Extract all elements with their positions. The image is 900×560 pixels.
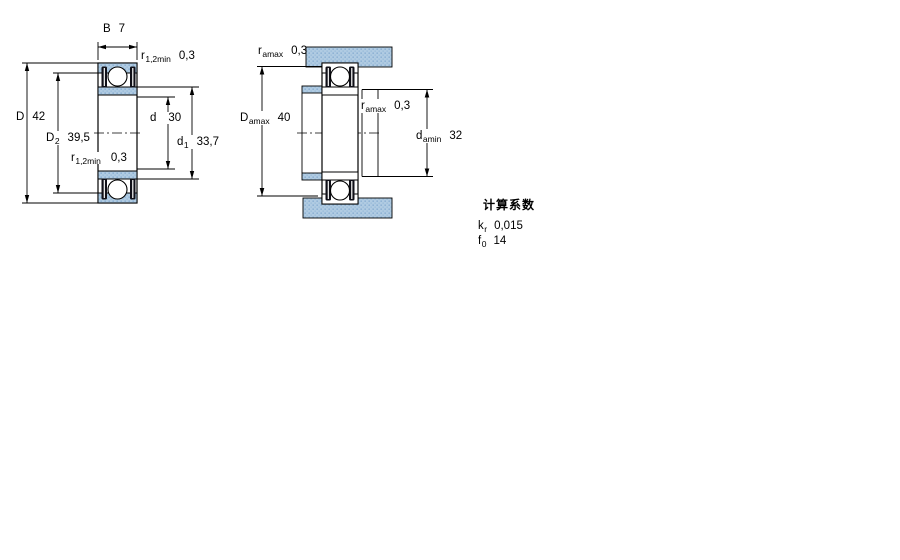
dim-label-D: D42 [16, 110, 45, 124]
dim-label-Damax: Damax40 [238, 111, 292, 125]
bearing-dimension-drawing-page: B7 r1,2min0,3 D42 D239,5 d30 d133,7 r1,2… [0, 0, 900, 560]
right-figure-abutment-section [257, 47, 433, 218]
dim-label-d1: d133,7 [175, 135, 221, 149]
calculation-factors-title: 计算系数 [483, 196, 535, 213]
factor-row-kr: kr0,015 [478, 219, 523, 233]
dim-label-ra-top: ramax0,3 [258, 44, 307, 58]
factor-row-f0: f014 [478, 234, 506, 248]
ball-icon [108, 180, 127, 199]
dim-label-r12-top: r1,2min0,3 [141, 49, 195, 63]
ball-icon [331, 67, 350, 86]
dim-label-ra-mid: ramax0,3 [359, 99, 412, 113]
dim-label-d: d30 [148, 111, 183, 125]
dim-label-D2: D239,5 [44, 131, 92, 145]
technical-drawing [0, 0, 900, 560]
ball-icon [108, 67, 127, 86]
right-bearing-body [322, 63, 358, 204]
dim-label-r12-bottom: r1,2min0,3 [69, 151, 129, 165]
left-bearing-body [94, 63, 141, 203]
dim-label-B: B7 [103, 22, 125, 36]
ball-icon [331, 181, 350, 200]
dim-label-damin: damin32 [414, 129, 464, 143]
